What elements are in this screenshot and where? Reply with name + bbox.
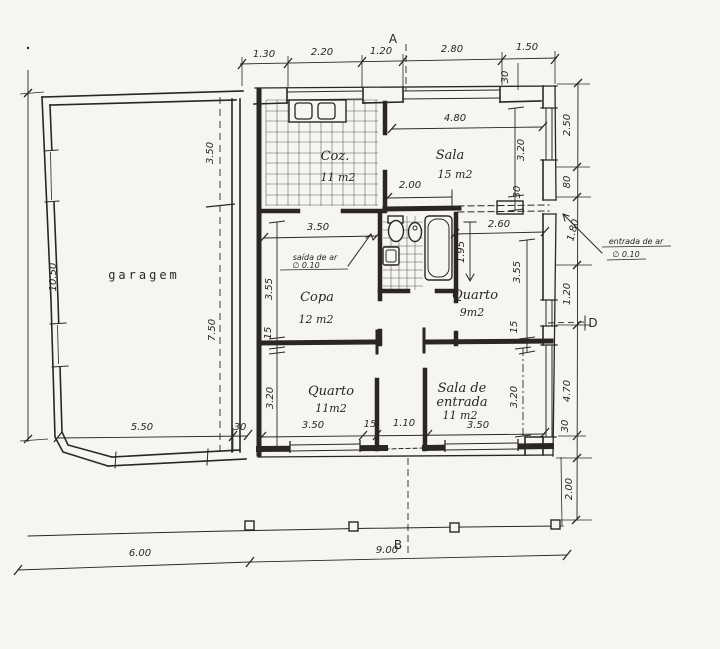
front-door-threshold: [385, 448, 425, 449]
dim-top-1: 1.30: [253, 49, 275, 60]
dim-right-4: 1.20: [562, 283, 573, 305]
entrada-de-ar-label: entrada de ar: [609, 237, 664, 246]
dim-copa-wall: 15: [263, 327, 274, 340]
dim-top-wall-30: 30: [500, 71, 511, 84]
dim-quarto11-height: 3.20: [265, 387, 276, 409]
saida-de-ar-leader: [348, 234, 373, 266]
dim-top-2: 2.20: [311, 47, 333, 58]
room-area-sala: 15 m2: [438, 168, 473, 181]
floor-plan-drawing: 1.30 2.20 1.20 2.80 1.50 30 A 2.50 80 1.…: [0, 0, 720, 649]
dim-right-wall-30: 30: [560, 420, 571, 433]
room-label-entrada-2: entrada: [436, 395, 487, 410]
terrace: [28, 457, 563, 536]
dim-right-1: 2.50: [562, 114, 573, 136]
entrada-de-ar-size: ∅ 0.10: [612, 250, 639, 259]
dim-bottom-left: 6.00: [129, 548, 151, 559]
room-label-sala: Sala: [436, 148, 465, 163]
wall-sala-south: [385, 208, 459, 209]
dim-vestibule-width: 2.60: [488, 219, 510, 230]
dimension-lines: [14, 47, 592, 575]
east-windows: [546, 108, 552, 437]
toilet-icon: [389, 221, 404, 242]
dim-corridor-width: 1.10: [393, 418, 415, 429]
wall-hall-south: [259, 341, 551, 343]
bathtub-icon: [425, 216, 452, 280]
dim-quarto11-width: 3.50: [302, 420, 324, 431]
interior-walls: [259, 103, 551, 449]
dim-copa-height: 3.55: [264, 278, 275, 300]
room-label-entrada-1: Sala de: [438, 381, 487, 396]
room-area-quarto9: 9m2: [460, 306, 484, 319]
room-label-copa: Copa: [300, 290, 334, 305]
dim-right-6: 2.00: [564, 478, 575, 500]
dim-sala-wall: 30: [512, 186, 523, 199]
floor-plan-sheet: 1.30 2.20 1.20 2.80 1.50 30 A 2.50 80 1.…: [0, 0, 720, 649]
room-area-quarto11: 11m2: [315, 402, 346, 415]
dim-sala-width: 4.80: [444, 113, 466, 124]
room-area-entrada: 11 m2: [443, 409, 478, 422]
room-label-garagem: garagem: [108, 268, 180, 282]
dim-garage-wall: 30: [234, 422, 247, 433]
terrace-post-3: [450, 523, 459, 532]
terrace-post-1: [245, 521, 254, 530]
vestibule-pier: [497, 201, 523, 214]
saida-de-ar-size: ∅ 0.10: [292, 261, 319, 270]
north-windows: [287, 90, 500, 100]
kitchen-sink: [289, 100, 346, 122]
dim-right-2: 80: [562, 176, 573, 189]
dim-top-5: 1.50: [516, 42, 538, 53]
room-label-quarto9: Quarto: [452, 288, 498, 303]
room-area-coz: 11 m2: [321, 171, 356, 184]
dim-copa-width: 3.50: [307, 222, 329, 233]
dim-bath-depth: 1.95: [456, 241, 467, 263]
dim-entrada-height: 3.20: [509, 386, 520, 408]
terrace-edge: [28, 526, 563, 536]
dim-left-height: 10.50: [48, 263, 59, 292]
dim-sala-height: 3.20: [516, 139, 527, 161]
dim-garage-width: 5.50: [131, 422, 153, 433]
room-area-copa: 12 m2: [299, 313, 334, 326]
dim-quarto9-height: 3.55: [512, 261, 523, 283]
dim-sala-part: 2.00: [399, 180, 421, 191]
section-marker-a: A: [389, 32, 398, 46]
dim-garage-back: 7.50: [207, 319, 218, 341]
dim-garage-front: 3.50: [205, 142, 216, 164]
dim-quarto11-wall: 15: [364, 419, 377, 430]
section-marker-d: D: [588, 316, 597, 330]
room-label-quarto11: Quarto: [308, 384, 354, 399]
room-label-coz: Coz.: [321, 149, 350, 164]
bidet-icon: [409, 223, 422, 242]
terrace-post-4: [551, 520, 560, 529]
dim-top-3: 1.20: [370, 46, 392, 57]
dim-quarto9-wall: 15: [509, 321, 520, 334]
terrace-post-2: [349, 522, 358, 531]
dim-top-4: 2.80: [441, 44, 463, 55]
dim-right-5: 4.70: [562, 380, 573, 402]
section-marker-b: B: [394, 538, 402, 552]
bathroom-fixtures: [383, 216, 452, 280]
corridor-jambs: [377, 329, 424, 353]
